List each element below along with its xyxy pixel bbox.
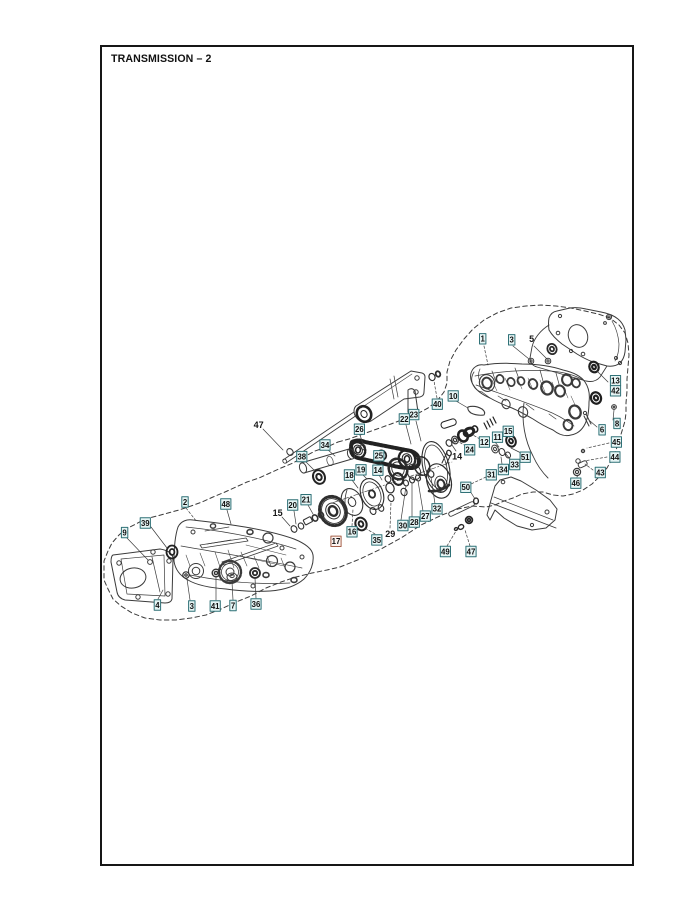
svg-text:3: 3	[510, 336, 515, 345]
svg-text:15: 15	[273, 508, 283, 518]
svg-text:16: 16	[348, 528, 357, 537]
svg-text:41: 41	[211, 602, 220, 611]
svg-text:44: 44	[611, 453, 620, 462]
svg-text:10: 10	[449, 392, 458, 401]
svg-text:23: 23	[409, 411, 418, 420]
svg-text:24: 24	[465, 446, 474, 455]
svg-text:13: 13	[611, 377, 620, 386]
svg-text:50: 50	[461, 483, 470, 492]
svg-text:46: 46	[571, 479, 580, 488]
svg-text:7: 7	[231, 601, 235, 610]
svg-text:43: 43	[596, 468, 605, 477]
svg-text:32: 32	[433, 505, 442, 514]
svg-text:45: 45	[612, 438, 621, 447]
svg-text:19: 19	[357, 466, 366, 475]
svg-text:4: 4	[155, 601, 160, 610]
svg-text:14: 14	[452, 452, 462, 462]
svg-text:28: 28	[410, 518, 419, 527]
svg-text:51: 51	[521, 453, 530, 462]
svg-text:26: 26	[355, 425, 364, 434]
svg-text:2: 2	[183, 498, 188, 507]
svg-text:40: 40	[433, 400, 442, 409]
svg-text:42: 42	[611, 387, 620, 396]
svg-text:34: 34	[499, 465, 508, 474]
svg-text:22: 22	[400, 415, 409, 424]
svg-text:20: 20	[288, 501, 297, 510]
svg-text:39: 39	[141, 519, 150, 528]
svg-text:38: 38	[297, 453, 306, 462]
svg-text:31: 31	[487, 471, 496, 480]
svg-text:25: 25	[374, 452, 383, 461]
svg-text:29: 29	[385, 529, 395, 539]
svg-text:1: 1	[481, 335, 486, 344]
svg-text:47: 47	[467, 547, 476, 556]
svg-text:9: 9	[122, 529, 127, 538]
svg-text:3: 3	[190, 602, 195, 611]
svg-text:36: 36	[252, 600, 261, 609]
svg-text:30: 30	[399, 521, 408, 530]
svg-text:48: 48	[221, 500, 230, 509]
svg-text:18: 18	[345, 471, 354, 480]
svg-text:17: 17	[332, 537, 341, 546]
svg-text:8: 8	[615, 419, 620, 428]
svg-text:35: 35	[372, 536, 381, 545]
svg-text:11: 11	[493, 433, 502, 442]
svg-text:5: 5	[529, 334, 534, 344]
svg-text:47: 47	[254, 420, 264, 430]
svg-text:34: 34	[321, 441, 330, 450]
svg-text:49: 49	[441, 547, 450, 556]
svg-text:33: 33	[510, 460, 519, 469]
svg-text:27: 27	[421, 512, 430, 521]
svg-text:15: 15	[504, 427, 513, 436]
svg-text:6: 6	[600, 426, 605, 435]
svg-text:21: 21	[302, 496, 311, 505]
svg-text:12: 12	[480, 438, 489, 447]
svg-text:14: 14	[374, 466, 383, 475]
